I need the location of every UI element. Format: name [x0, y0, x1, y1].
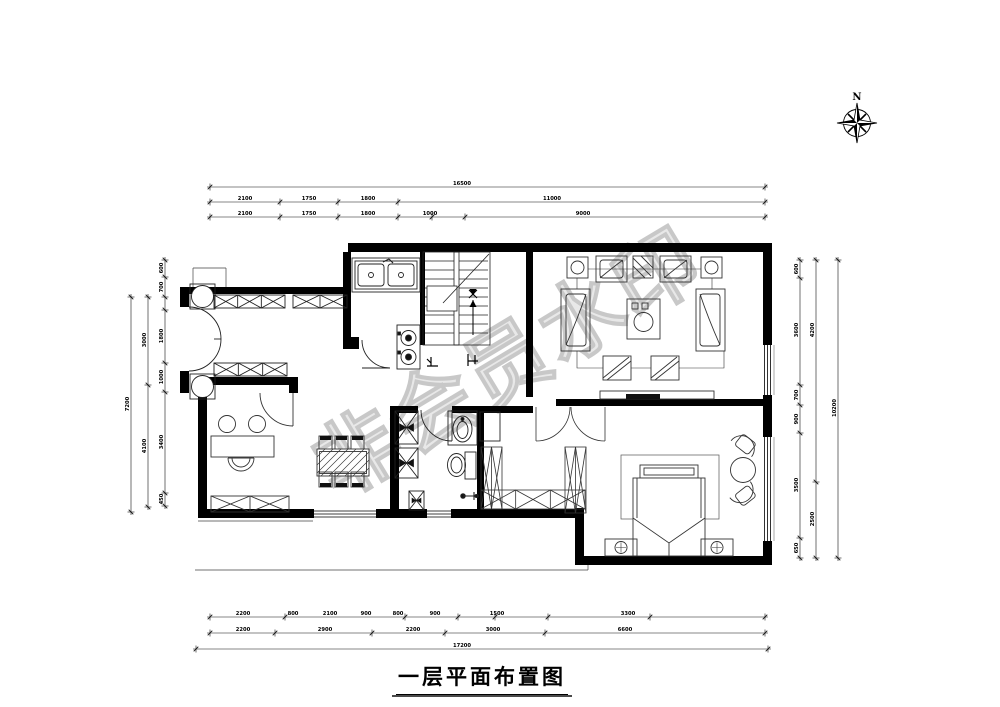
svg-text:800: 800 [288, 611, 299, 617]
window-dining-bottom [314, 508, 376, 519]
shoe-cabinet [214, 363, 287, 376]
round-chair [249, 416, 266, 433]
svg-text:2500: 2500 [810, 511, 816, 526]
svg-text:2100: 2100 [323, 611, 338, 617]
title-underline [392, 695, 572, 697]
svg-text:2100: 2100 [238, 211, 253, 217]
svg-text:450: 450 [159, 493, 165, 504]
svg-text:2100: 2100 [238, 196, 253, 202]
kitchen-door [362, 340, 390, 368]
bed [633, 465, 705, 556]
svg-text:800: 800 [393, 611, 404, 617]
side-table [567, 257, 588, 278]
staircase [423, 252, 490, 366]
floor-plan-drawing: N 16500210017501800110002100175018001000… [0, 0, 1000, 707]
stove [397, 325, 420, 369]
nightstand [605, 539, 637, 556]
study [211, 393, 293, 512]
desk [211, 436, 274, 457]
nightstand [701, 539, 733, 556]
svg-text:1000: 1000 [423, 211, 438, 217]
round-chair [219, 416, 236, 433]
svg-text:16500: 16500 [453, 181, 471, 187]
svg-text:700: 700 [159, 281, 165, 292]
stair-entry-marks [427, 354, 478, 366]
drawing-title: 一层平面布置图 [396, 661, 568, 697]
svg-text:3000: 3000 [142, 332, 148, 347]
svg-text:1000: 1000 [159, 369, 165, 384]
floor-drain-faucet [461, 492, 478, 500]
tv-cabinet [600, 391, 714, 399]
stair-direction-arrow [469, 289, 477, 335]
svg-text:4200: 4200 [810, 322, 816, 337]
svg-text:2200: 2200 [236, 611, 251, 617]
tub-chair [730, 482, 760, 510]
sofa-left [561, 289, 590, 351]
tea-table [627, 299, 660, 339]
svg-text:1750: 1750 [302, 196, 317, 202]
svg-text:3000: 3000 [486, 627, 501, 633]
svg-text:1500: 1500 [490, 611, 505, 617]
svg-text:1800: 1800 [159, 328, 165, 343]
window-bedroom-right [762, 437, 773, 541]
compass-icon: N [837, 92, 877, 143]
toilet [448, 452, 477, 479]
svg-text:11000: 11000 [543, 196, 561, 202]
window-living-right [762, 345, 773, 395]
svg-text:1800: 1800 [361, 211, 376, 217]
svg-text:17200: 17200 [453, 643, 471, 649]
bedroom [605, 430, 760, 556]
svg-text:2200: 2200 [406, 627, 421, 633]
svg-text:3400: 3400 [159, 434, 165, 449]
svg-text:6600: 6600 [618, 627, 633, 633]
svg-text:900: 900 [794, 413, 800, 424]
svg-text:3500: 3500 [794, 477, 800, 492]
svg-text:650: 650 [794, 542, 800, 553]
ottoman [651, 356, 679, 380]
compass-north-label: N [852, 92, 861, 103]
floor-plan-page: 非会员水印 [0, 0, 1000, 707]
cushion-stool [633, 256, 653, 278]
svg-text:3300: 3300 [621, 611, 636, 617]
kitchen [352, 258, 420, 369]
kitchen-sink [352, 258, 420, 292]
bathroom [395, 410, 500, 510]
desk-chair [228, 458, 254, 471]
svg-text:1750: 1750 [302, 211, 317, 217]
shoe-cabinet [214, 295, 285, 308]
svg-text:1800: 1800 [361, 196, 376, 202]
svg-text:900: 900 [430, 611, 441, 617]
dining-room [317, 436, 369, 487]
window-hall-bottom [427, 508, 451, 519]
svg-text:3600: 3600 [794, 322, 800, 337]
bedroom-door [571, 407, 605, 441]
svg-text:900: 900 [361, 611, 372, 617]
svg-text:4100: 4100 [142, 438, 148, 453]
closet-cabinet [481, 490, 585, 509]
svg-text:7200: 7200 [125, 396, 131, 411]
entry-double-door [189, 307, 221, 371]
shoe-cabinet [293, 295, 347, 308]
round-side-table [731, 458, 756, 483]
svg-text:10200: 10200 [832, 399, 838, 417]
side-table [701, 257, 722, 278]
vestibule-door [536, 407, 570, 441]
svg-text:9000: 9000 [576, 211, 591, 217]
svg-text:2200: 2200 [236, 627, 251, 633]
svg-text:600: 600 [794, 263, 800, 274]
svg-text:2900: 2900 [318, 627, 333, 633]
utility-box [409, 491, 424, 510]
living-room [561, 256, 725, 399]
closet-cabinet [565, 447, 586, 513]
sofa-right [696, 289, 725, 351]
svg-text:700: 700 [794, 389, 800, 400]
tub-chair [730, 430, 759, 457]
sofa-connector-lines [577, 269, 724, 368]
svg-text:600: 600 [159, 262, 165, 273]
bathroom-door [421, 410, 452, 441]
ottoman [603, 356, 631, 380]
